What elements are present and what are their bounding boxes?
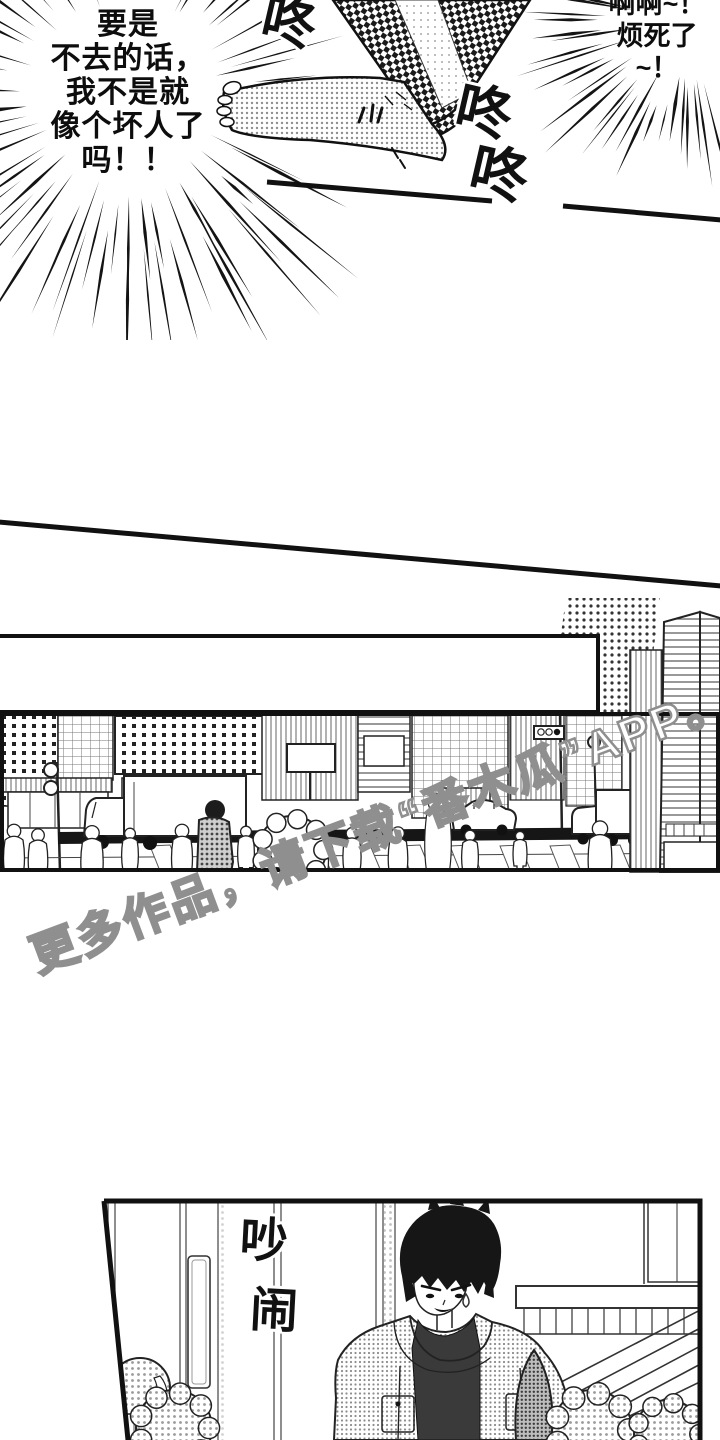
caption-box (0, 634, 600, 714)
speech-line: 要是 (24, 8, 232, 42)
speech-line: ~！ (592, 52, 720, 84)
speech-line: 啊啊~！ (592, 0, 720, 20)
speech-line: 像个坏人了 (24, 110, 232, 144)
speech-bubble-burst-left: 要是 不去的话， 我不是就 像个坏人了 吗！！ (24, 8, 232, 178)
speech-bubble-burst-right: 啊啊~！ 烦死了 ~！ (592, 0, 720, 84)
inner-dark-shirt (412, 1318, 480, 1440)
speech-line: 烦死了 (592, 20, 720, 52)
speech-line: 我不是就 (24, 76, 232, 110)
sfx-noise-top: 吵 (239, 1217, 289, 1267)
manga-page: 要是 不去的话， 我不是就 像个坏人了 吗！！ 啊啊~！ 烦死了 ~！ (0, 0, 720, 1440)
bare-foot (217, 77, 445, 168)
speech-line: 不去的话， (24, 42, 232, 76)
speech-line: 吗！！ (24, 144, 232, 178)
bottom-panel: 吵 闹 (88, 1198, 710, 1440)
sfx-noise-bottom: 闹 (249, 1287, 299, 1337)
bottom-panel-artwork (88, 1198, 710, 1440)
